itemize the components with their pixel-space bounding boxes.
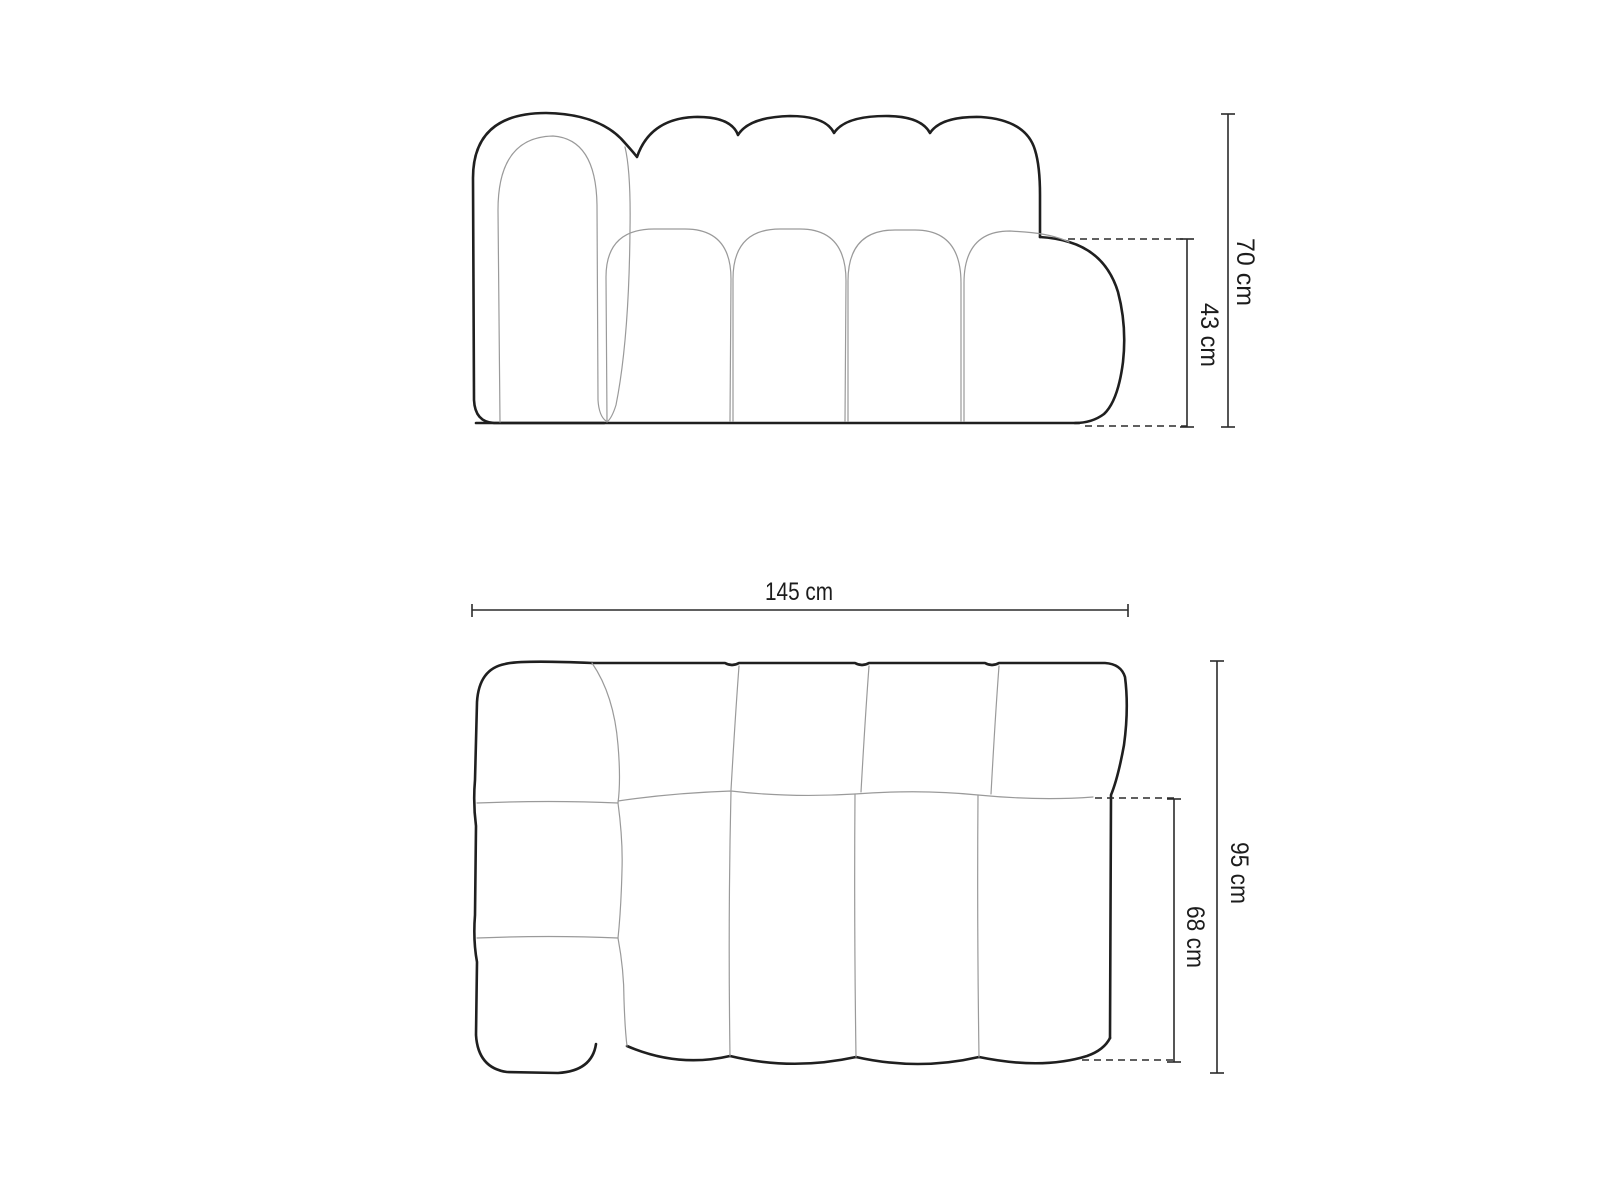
plan-armrest-seat-boundary-mid <box>618 803 622 938</box>
plan-backrest-division-1 <box>731 666 739 790</box>
plan-back-and-right-edge <box>592 663 1127 1038</box>
front-seat-cushion-1 <box>606 229 731 421</box>
plan-seat-scallop-1 <box>627 1046 730 1060</box>
front-armrest-inner-right-line <box>607 147 630 422</box>
dimension-labels: 70 cm 43 cm 145 cm 95 cm 68 cm <box>765 238 1259 968</box>
label-total-height: 70 cm <box>1231 238 1259 306</box>
dimension-lines <box>472 114 1235 1073</box>
top-view-dark-outlines <box>474 662 1127 1073</box>
plan-seat-scallop-2 <box>730 1056 856 1064</box>
top-view-light-outlines <box>477 663 1093 1057</box>
front-seat-cushion-3 <box>848 230 961 421</box>
label-seat-height: 43 cm <box>1195 303 1223 367</box>
plan-armrest-seam-1 <box>477 802 618 804</box>
plan-seat-scallop-3 <box>856 1057 979 1064</box>
front-seat-cushion-4 <box>964 231 1069 421</box>
front-extension-lines <box>1068 239 1187 426</box>
plan-armrest-outline <box>474 662 596 1073</box>
plan-seat-divider-3 <box>978 795 979 1057</box>
label-total-width: 145 cm <box>765 578 833 606</box>
plan-seat-divider-2 <box>855 794 856 1057</box>
front-view-light-outlines <box>498 136 1069 422</box>
plan-armrest-seat-boundary-bottom <box>618 938 627 1046</box>
label-seat-depth: 68 cm <box>1181 906 1209 968</box>
front-armrest-inner-line <box>498 136 606 422</box>
front-armrest-and-backrest-silhouette <box>473 113 1040 423</box>
plan-armrest-seat-boundary-top <box>592 663 620 803</box>
plan-seat-scallop-4 <box>979 1038 1110 1063</box>
plan-extension-lines <box>1082 798 1174 1060</box>
label-total-depth: 95 cm <box>1225 842 1253 904</box>
sofa-dimension-diagram: 70 cm 43 cm 145 cm 95 cm 68 cm <box>0 0 1600 1200</box>
front-seat-cushion-2 <box>733 229 846 421</box>
plan-seat-divider-1 <box>729 791 731 1056</box>
diagram-canvas: 70 cm 43 cm 145 cm 95 cm 68 cm <box>0 0 1600 1200</box>
plan-backrest-division-2 <box>861 666 869 792</box>
front-view-dark-outlines <box>473 113 1124 423</box>
plan-backrest-division-3 <box>991 666 999 794</box>
front-seat-right-edge <box>1040 237 1124 423</box>
plan-armrest-seam-2 <box>477 937 618 939</box>
